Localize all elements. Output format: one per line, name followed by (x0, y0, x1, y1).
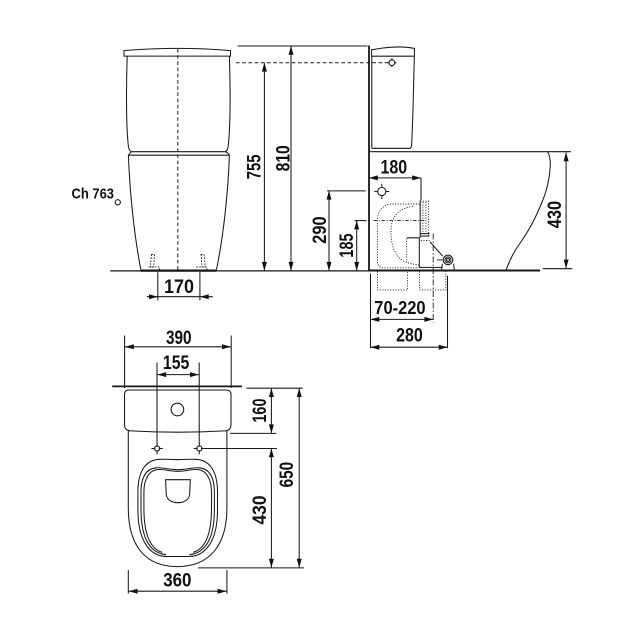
svg-text:430: 430 (249, 495, 271, 524)
svg-text:430: 430 (544, 201, 566, 229)
svg-text:280: 280 (396, 324, 423, 346)
svg-text:650: 650 (276, 462, 298, 488)
svg-text:Ch 763: Ch 763 (72, 185, 115, 202)
svg-text:155: 155 (163, 352, 190, 374)
svg-text:70-220: 70-220 (374, 297, 425, 318)
svg-text:755: 755 (243, 154, 265, 179)
svg-text:185: 185 (336, 233, 358, 257)
svg-text:360: 360 (163, 570, 191, 592)
svg-text:170: 170 (164, 276, 194, 298)
svg-text:180: 180 (381, 157, 408, 179)
svg-text:810: 810 (272, 145, 294, 171)
svg-text:290: 290 (309, 216, 331, 244)
svg-text:160: 160 (249, 398, 271, 422)
svg-text:390: 390 (166, 327, 192, 349)
